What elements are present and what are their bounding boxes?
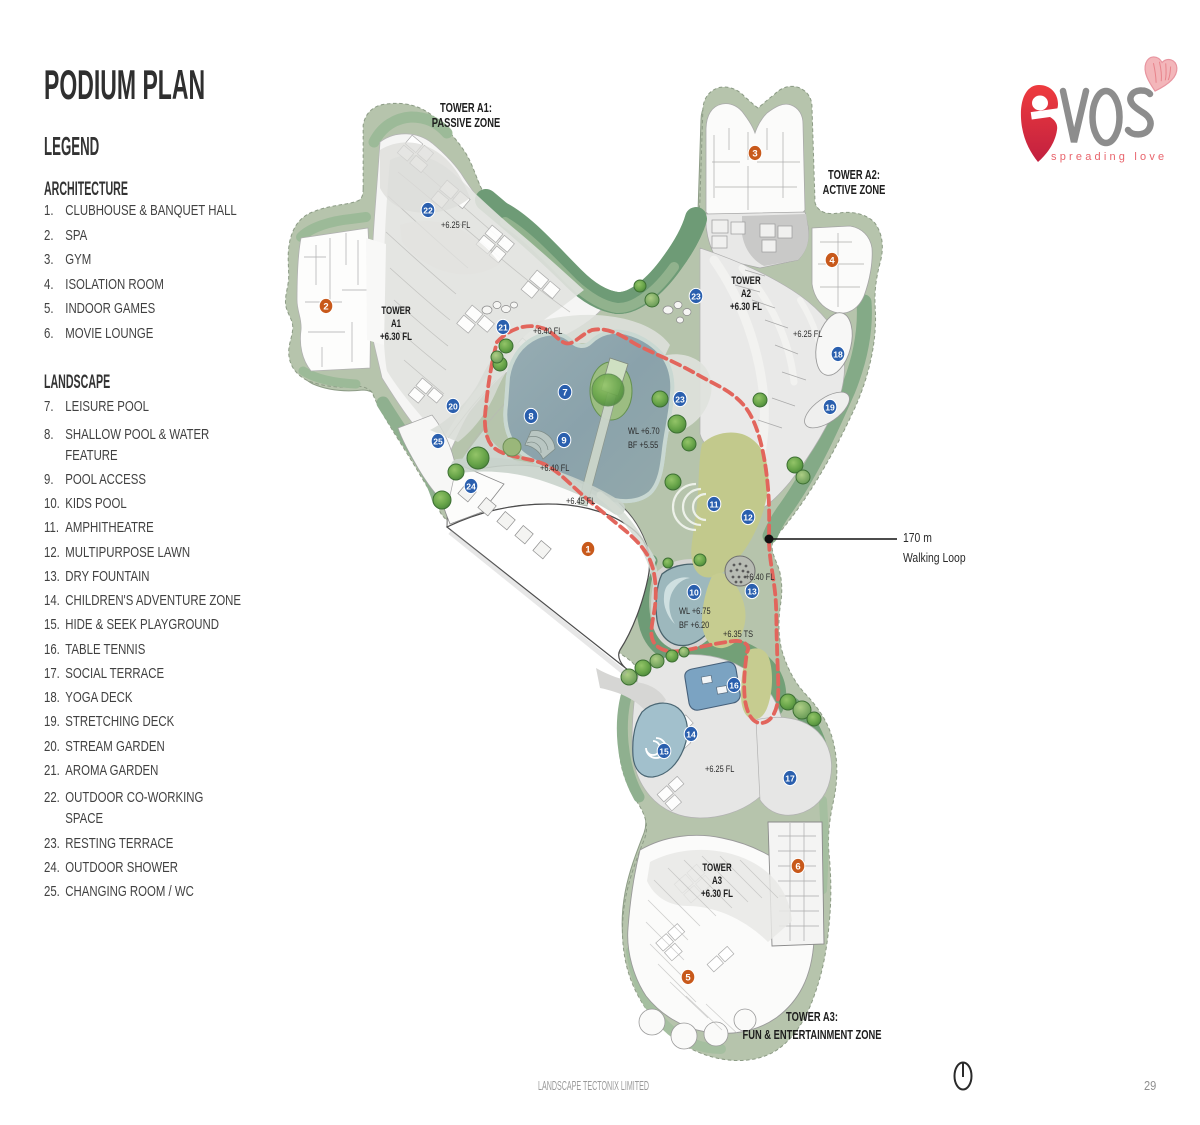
svg-text:5: 5 [685, 973, 691, 984]
svg-text:12: 12 [743, 512, 753, 522]
svg-text:23: 23 [691, 291, 701, 301]
svg-text:22: 22 [423, 205, 433, 215]
svg-text:25: 25 [433, 436, 443, 446]
svg-text:TOWER A2:: TOWER A2: [828, 169, 880, 183]
svg-text:TOWER A1:: TOWER A1: [440, 102, 492, 116]
svg-text:+6.30 FL: +6.30 FL [380, 331, 412, 344]
svg-text:21: 21 [498, 322, 508, 332]
svg-text:+6.35 TS: +6.35 TS [723, 628, 753, 639]
svg-text:+6.40 FL: +6.40 FL [745, 571, 775, 582]
svg-text:BF +5.55: BF +5.55 [628, 439, 658, 450]
svg-text:2: 2 [323, 302, 328, 313]
svg-text:10: 10 [689, 587, 699, 597]
svg-text:8: 8 [528, 412, 533, 423]
svg-text:24: 24 [466, 481, 476, 491]
svg-text:FUN & ENTERTAINMENT ZONE: FUN & ENTERTAINMENT ZONE [742, 1029, 881, 1043]
svg-text:+6.45 FL: +6.45 FL [566, 495, 596, 506]
svg-text:13: 13 [747, 586, 757, 596]
svg-text:18: 18 [833, 349, 843, 359]
svg-text:Walking Loop: Walking Loop [903, 551, 966, 565]
svg-text:1: 1 [585, 545, 591, 556]
svg-text:+6.30 FL: +6.30 FL [730, 301, 762, 314]
svg-text:11: 11 [709, 499, 718, 509]
svg-text:17: 17 [785, 773, 795, 783]
svg-text:TOWER: TOWER [381, 305, 410, 318]
svg-text:14: 14 [686, 729, 696, 739]
svg-text:TOWER A3:: TOWER A3: [786, 1011, 838, 1025]
svg-text:19: 19 [825, 402, 835, 412]
svg-text:15: 15 [659, 746, 669, 756]
svg-text:7: 7 [562, 388, 567, 399]
svg-text:+6.30 FL: +6.30 FL [701, 888, 733, 901]
svg-text:TOWER: TOWER [702, 862, 731, 875]
svg-text:WL +6.75: WL +6.75 [679, 605, 711, 616]
svg-text:WL +6.70: WL +6.70 [628, 425, 660, 436]
svg-text:A1: A1 [391, 318, 402, 331]
svg-text:3: 3 [752, 149, 757, 160]
svg-text:9: 9 [561, 436, 566, 447]
svg-text:6: 6 [795, 862, 800, 873]
svg-text:4: 4 [829, 256, 835, 267]
svg-text:170 m: 170 m [903, 531, 932, 545]
svg-text:16: 16 [729, 680, 739, 690]
svg-text:+6.25 FL: +6.25 FL [705, 763, 735, 774]
svg-text:PASSIVE ZONE: PASSIVE ZONE [432, 117, 501, 131]
svg-text:+6.25 FL: +6.25 FL [793, 328, 823, 339]
svg-text:A2: A2 [741, 288, 751, 301]
svg-text:20: 20 [448, 401, 458, 411]
svg-text:+6.25 FL: +6.25 FL [441, 219, 471, 230]
svg-text:ACTIVE ZONE: ACTIVE ZONE [823, 184, 886, 198]
svg-text:TOWER: TOWER [731, 275, 760, 288]
svg-text:+6.40 FL: +6.40 FL [540, 462, 570, 473]
svg-text:+6.40 FL: +6.40 FL [533, 325, 563, 336]
svg-text:BF +6.20: BF +6.20 [679, 619, 709, 630]
svg-text:23: 23 [675, 394, 685, 404]
svg-text:A3: A3 [712, 875, 722, 888]
